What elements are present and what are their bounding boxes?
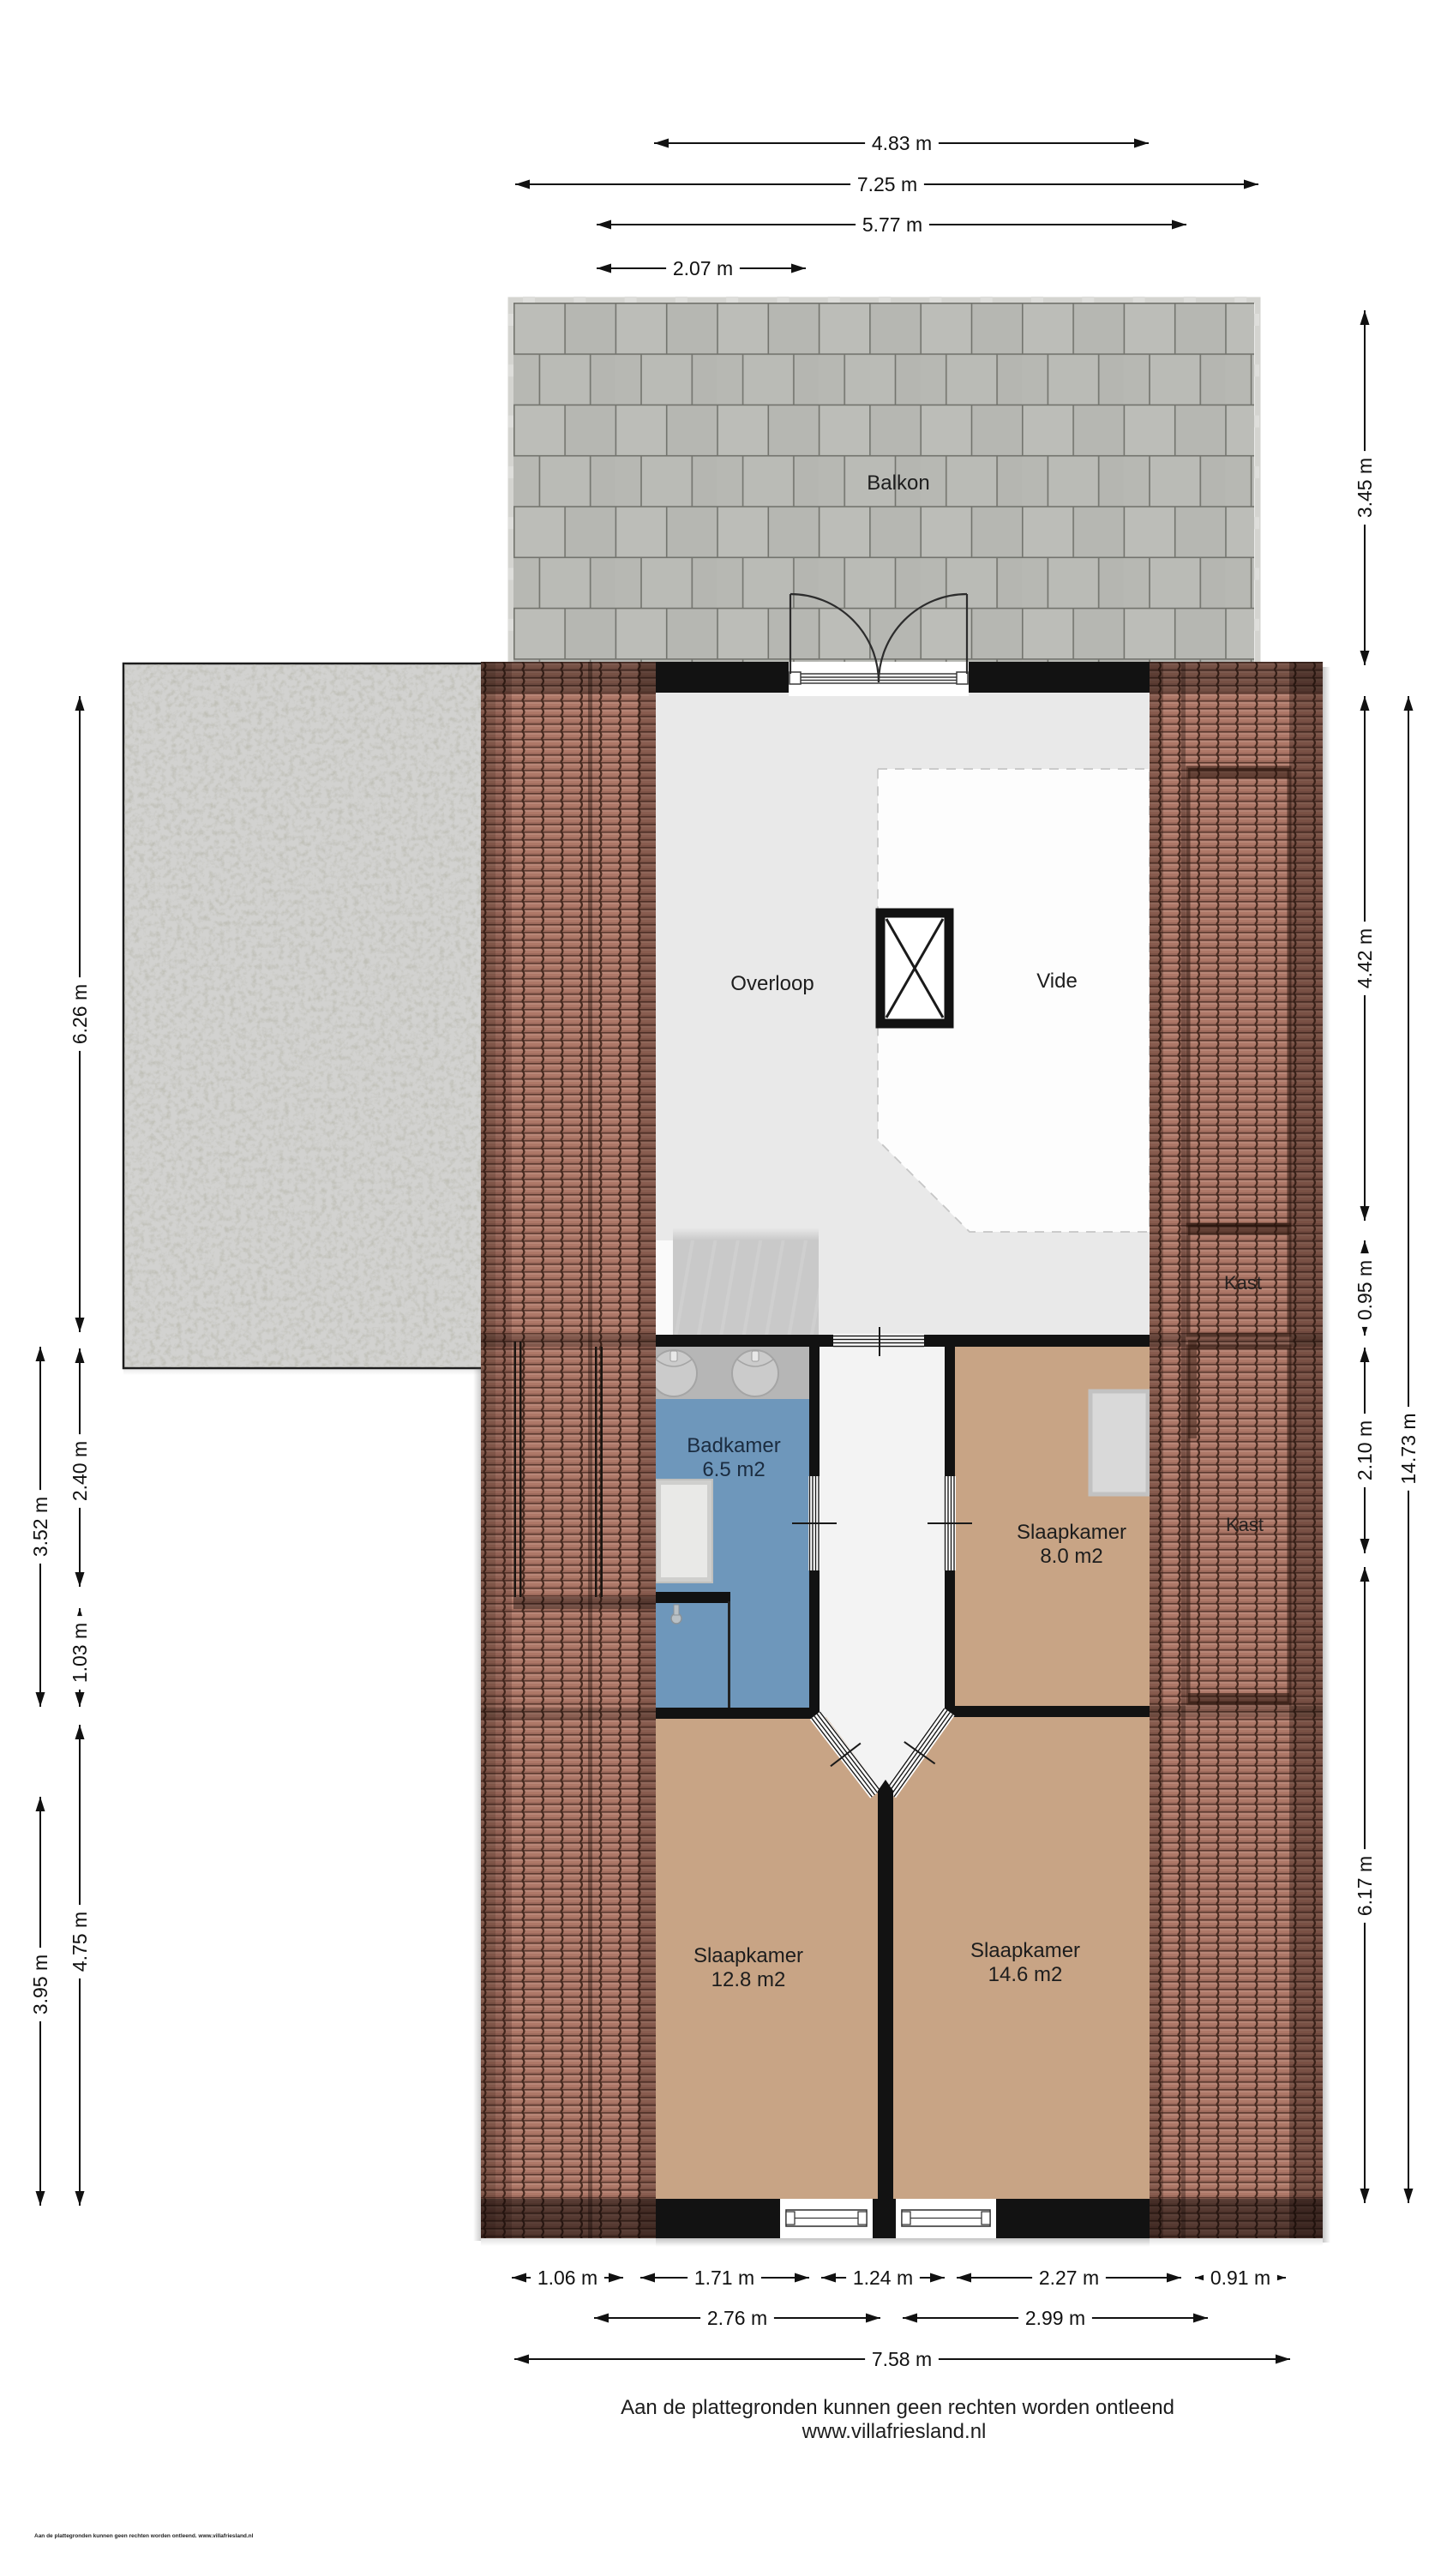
svg-text:1.24 m: 1.24 m <box>853 2267 913 2289</box>
svg-text:Balkon: Balkon <box>867 471 929 495</box>
svg-text:0.95 m: 0.95 m <box>1354 1260 1376 1320</box>
svg-text:Slaapkamer: Slaapkamer <box>970 1939 1080 1962</box>
svg-text:4.42 m: 4.42 m <box>1354 928 1376 988</box>
svg-text:2.99 m: 2.99 m <box>1025 2307 1085 2329</box>
svg-text:6.5 m2: 6.5 m2 <box>702 1458 765 1481</box>
svg-text:Badkamer: Badkamer <box>687 1434 780 1457</box>
svg-text:6.26 m: 6.26 m <box>69 984 91 1044</box>
svg-text:5.77 m: 5.77 m <box>862 213 922 236</box>
svg-text:2.10 m: 2.10 m <box>1354 1420 1376 1480</box>
svg-text:2.27 m: 2.27 m <box>1039 2267 1099 2289</box>
svg-text:www.villafriesland.nl: www.villafriesland.nl <box>802 2420 987 2443</box>
svg-text:Aan de plattegronden kunnen ge: Aan de plattegronden kunnen geen rechten… <box>34 2533 254 2539</box>
svg-text:12.8 m2: 12.8 m2 <box>711 1968 786 1991</box>
svg-text:Kast: Kast <box>1226 1514 1264 1535</box>
svg-text:Kast: Kast <box>1224 1272 1262 1294</box>
svg-text:2.40 m: 2.40 m <box>69 1441 91 1501</box>
svg-text:2.07 m: 2.07 m <box>673 257 733 279</box>
svg-text:1.06 m: 1.06 m <box>537 2267 597 2289</box>
svg-text:0.91 m: 0.91 m <box>1210 2267 1270 2289</box>
svg-text:4.83 m: 4.83 m <box>872 132 932 154</box>
svg-text:Overloop: Overloop <box>730 972 814 995</box>
svg-text:3.52 m: 3.52 m <box>29 1497 51 1557</box>
svg-text:Slaapkamer: Slaapkamer <box>693 1944 803 1967</box>
svg-text:8.0 m2: 8.0 m2 <box>1040 1545 1102 1568</box>
svg-text:7.25 m: 7.25 m <box>857 173 917 195</box>
svg-text:14.73 m: 14.73 m <box>1397 1413 1420 1484</box>
svg-text:Vide: Vide <box>1036 970 1078 993</box>
svg-text:1.03 m: 1.03 m <box>69 1623 91 1683</box>
svg-text:6.17 m: 6.17 m <box>1354 1856 1376 1916</box>
svg-text:1.71 m: 1.71 m <box>694 2267 754 2289</box>
svg-text:14.6 m2: 14.6 m2 <box>988 1963 1063 1986</box>
svg-text:2.76 m: 2.76 m <box>707 2307 767 2329</box>
svg-text:Aan de plattegronden kunnen ge: Aan de plattegronden kunnen geen rechten… <box>621 2396 1174 2419</box>
svg-text:3.95 m: 3.95 m <box>29 1955 51 2015</box>
svg-text:4.75 m: 4.75 m <box>69 1912 91 1972</box>
svg-text:Slaapkamer: Slaapkamer <box>1017 1521 1126 1544</box>
svg-text:7.58 m: 7.58 m <box>872 2348 932 2370</box>
svg-text:3.45 m: 3.45 m <box>1354 458 1376 518</box>
